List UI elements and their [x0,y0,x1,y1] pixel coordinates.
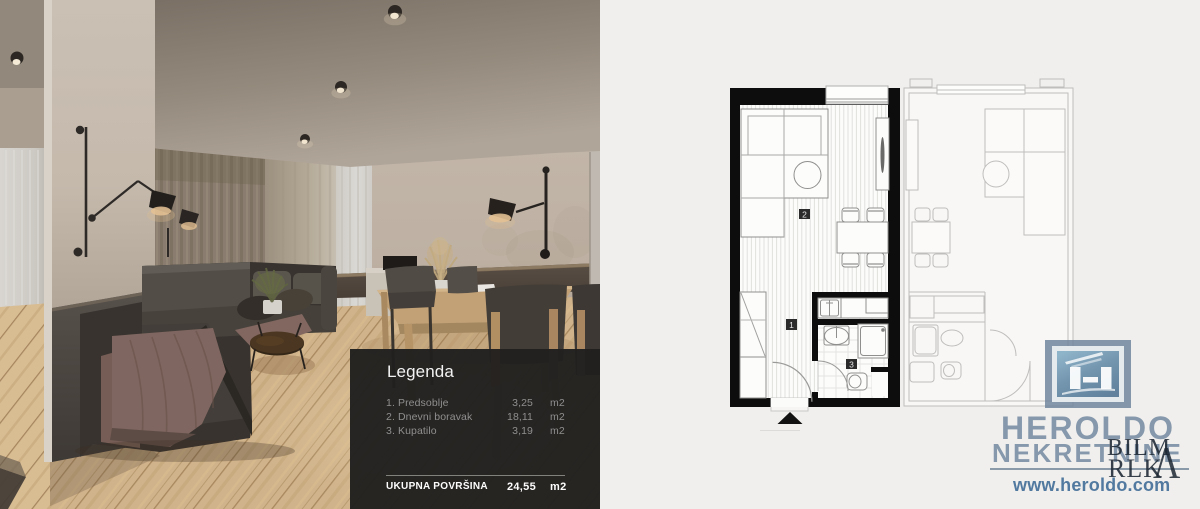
svg-text:1: 1 [789,320,794,330]
svg-text:2: 2 [802,210,807,220]
svg-text:3: 3 [849,360,854,370]
